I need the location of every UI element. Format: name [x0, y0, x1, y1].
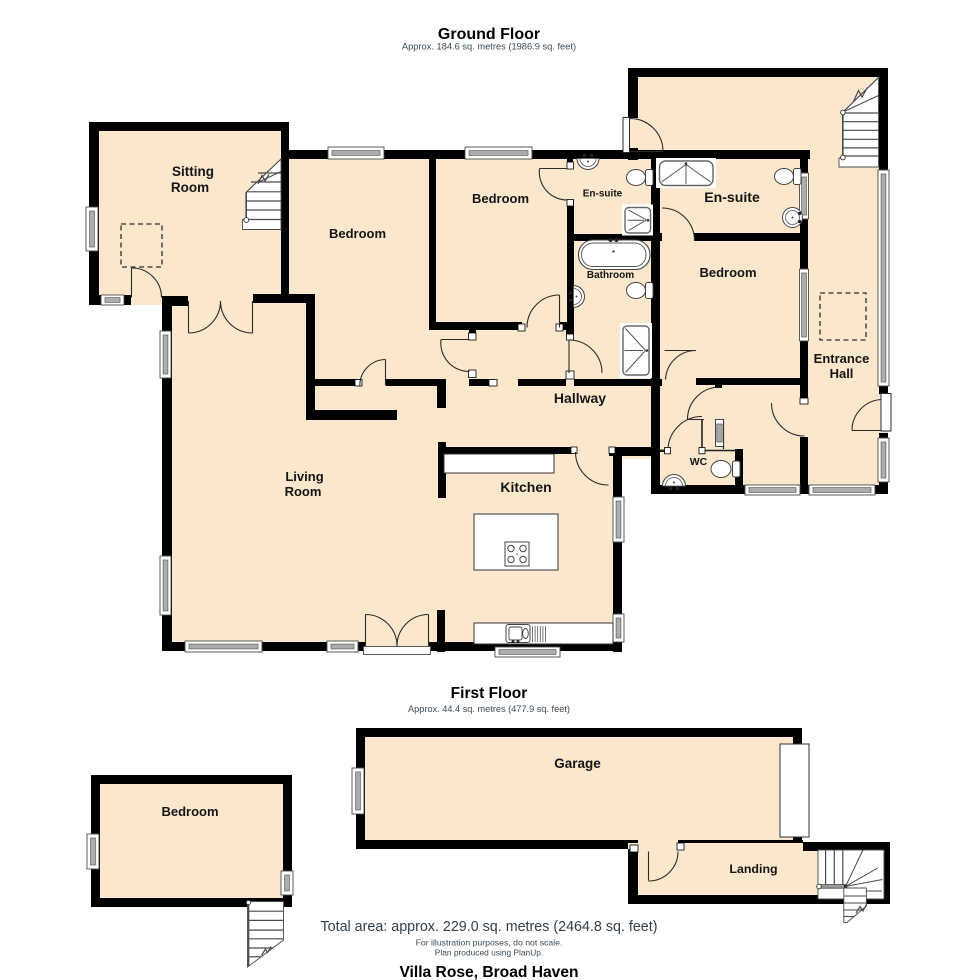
svg-text:Total area: approx. 229.0 sq.: Total area: approx. 229.0 sq. metres (24… [321, 919, 658, 935]
svg-text:Approx. 184.6 sq. metres (1986: Approx. 184.6 sq. metres (1986.9 sq. fee… [402, 42, 576, 52]
svg-text:Landing: Landing [729, 862, 777, 876]
svg-text:Approx. 44.4 sq. metres (477.9: Approx. 44.4 sq. metres (477.9 sq. feet) [408, 704, 570, 714]
svg-text:En-suite: En-suite [583, 189, 623, 200]
svg-text:For illustration purposes, do: For illustration purposes, do not scale. [416, 938, 563, 948]
svg-text:WC: WC [690, 456, 708, 468]
svg-text:Room: Room [285, 484, 322, 499]
svg-text:Bedroom: Bedroom [472, 191, 529, 206]
svg-text:Garage: Garage [554, 756, 601, 771]
svg-text:Plan produced using PlanUp.: Plan produced using PlanUp. [435, 948, 543, 958]
svg-text:Bedroom: Bedroom [161, 804, 218, 819]
svg-text:Sitting: Sitting [172, 164, 214, 179]
svg-text:Kitchen: Kitchen [500, 479, 551, 495]
svg-text:First Floor: First Floor [451, 685, 528, 702]
svg-text:En-suite: En-suite [704, 189, 760, 205]
svg-text:Bedroom: Bedroom [699, 265, 756, 280]
svg-text:Entrance: Entrance [814, 351, 870, 366]
svg-text:Living: Living [285, 469, 323, 484]
svg-text:Villa Rose, Broad Haven: Villa Rose, Broad Haven [399, 964, 578, 980]
svg-text:Bedroom: Bedroom [329, 226, 386, 241]
svg-text:Ground Floor: Ground Floor [438, 26, 540, 43]
svg-text:Hallway: Hallway [554, 390, 606, 406]
svg-text:Room: Room [171, 180, 209, 195]
svg-text:Hall: Hall [830, 366, 854, 381]
svg-text:Bathroom: Bathroom [587, 270, 634, 281]
